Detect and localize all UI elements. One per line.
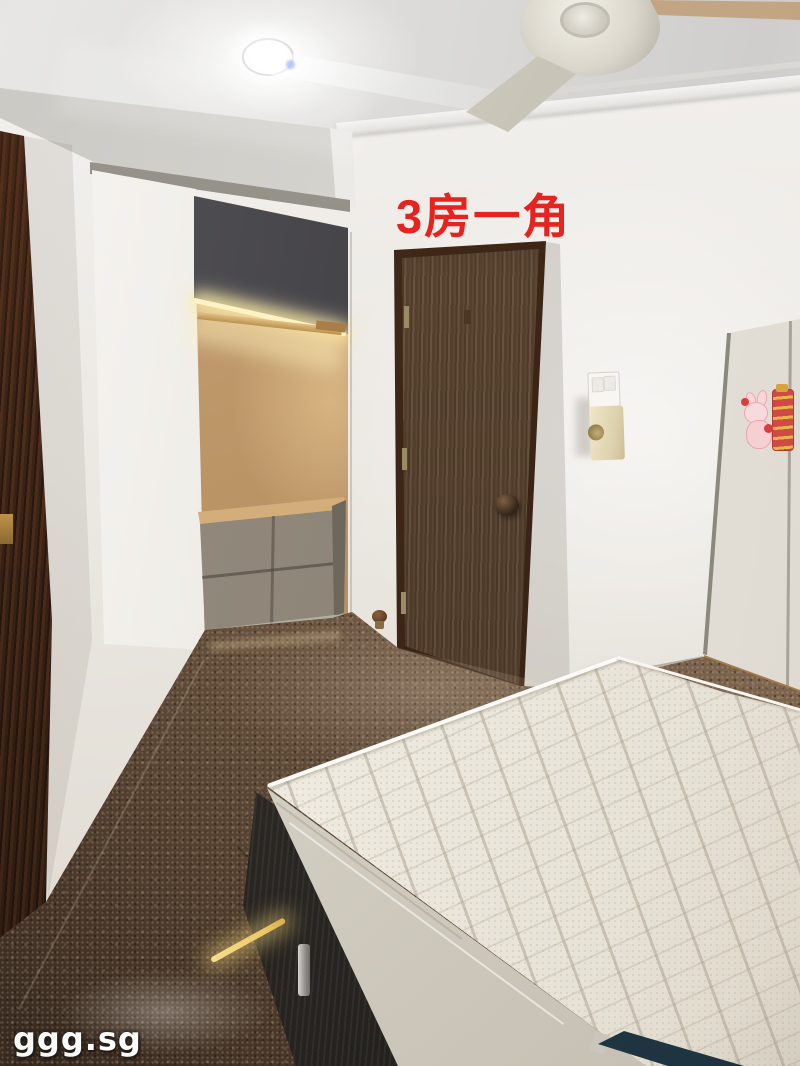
bed-leg — [298, 944, 310, 996]
ceiling-fan-cap — [560, 2, 610, 38]
switch-rocker[interactable] — [592, 377, 605, 392]
doorway-hinge — [0, 514, 13, 544]
wall-corner-line — [350, 232, 352, 634]
lens-glint — [286, 60, 295, 69]
rabbit-sticker-bow — [741, 398, 749, 406]
door-hook — [464, 310, 471, 324]
sticker-column-top — [776, 384, 788, 392]
watermark: ggg.sg — [13, 1020, 142, 1058]
dimmer-knob[interactable] — [588, 424, 605, 441]
door-knob[interactable] — [495, 494, 519, 516]
photo-caption: 3房一角 — [396, 178, 571, 247]
door-hinge-middle — [402, 448, 407, 470]
door-stopper-base — [375, 621, 384, 629]
listing-photo: 3房一角 ggg.sg — [0, 0, 800, 1066]
switch-rocker[interactable] — [603, 376, 616, 391]
door-hinge-bottom — [401, 592, 406, 614]
dimmer-control[interactable] — [589, 405, 625, 460]
rabbit-sticker-accent — [764, 424, 773, 433]
new-year-sticker-column — [772, 389, 794, 451]
door-hinge-top — [404, 306, 409, 328]
